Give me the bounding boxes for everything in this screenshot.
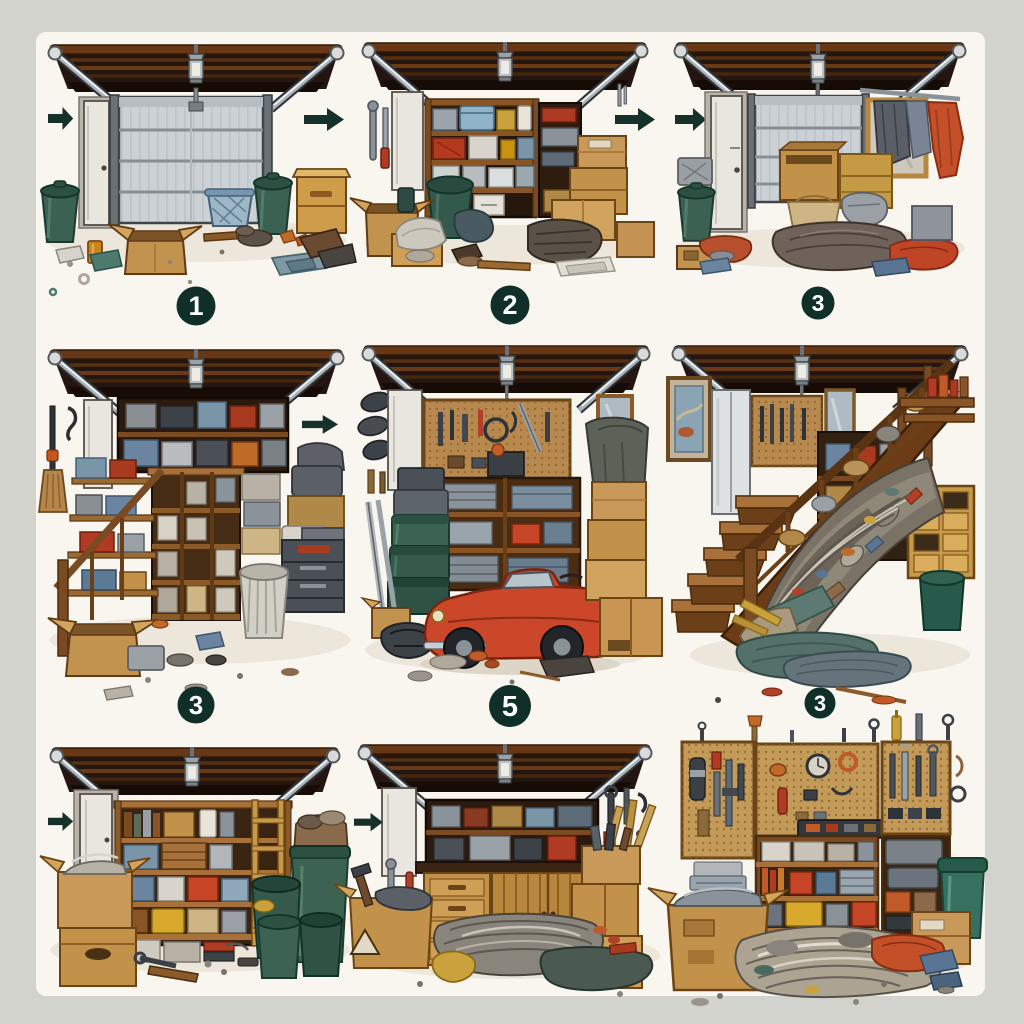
- svg-text:3: 3: [814, 691, 826, 716]
- svg-text:5: 5: [502, 691, 518, 723]
- svg-text:1: 1: [188, 291, 203, 321]
- svg-text:3: 3: [189, 690, 203, 720]
- svg-text:3: 3: [812, 290, 825, 316]
- svg-text:2: 2: [502, 290, 517, 320]
